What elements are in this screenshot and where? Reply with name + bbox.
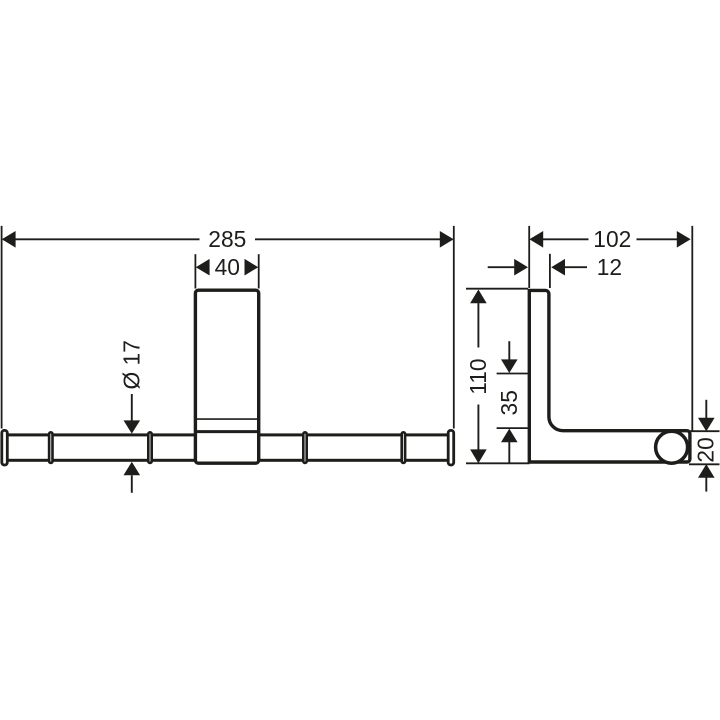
svg-text:20: 20 <box>693 437 719 462</box>
svg-text:102: 102 <box>593 226 631 252</box>
svg-text:40: 40 <box>215 254 240 280</box>
svg-text:Ø 17: Ø 17 <box>119 340 145 389</box>
svg-text:285: 285 <box>208 226 246 252</box>
svg-text:35: 35 <box>496 390 522 415</box>
svg-text:110: 110 <box>465 358 491 394</box>
svg-text:12: 12 <box>597 254 622 280</box>
